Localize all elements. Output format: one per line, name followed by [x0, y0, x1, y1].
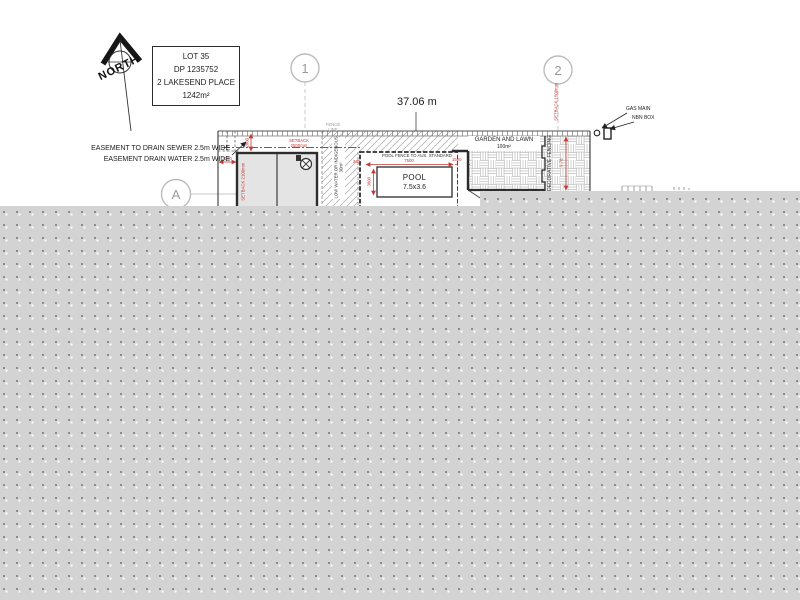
pool-outline	[377, 167, 452, 197]
decorative-fencing-label: DECORATIVE FENCING	[547, 134, 553, 192]
north-arrow-icon	[103, 37, 140, 131]
pool-size: 7.5x3.6	[377, 184, 452, 191]
svg-text:A: A	[172, 187, 181, 202]
garden-label: GARDEN AND LAWN 100m²	[468, 136, 540, 151]
nbn-leader	[610, 122, 634, 129]
dim-side: 9.78	[558, 152, 563, 174]
gas-main-symbol	[594, 130, 600, 136]
easement-note-2: EASEMENT DRAIN WATER 2.5m WIDE	[78, 156, 230, 163]
grid-marker-a: A	[162, 180, 238, 209]
easement-note-1: EASEMENT TO DRAIN SEWER 2.5m WIDE	[78, 145, 230, 152]
fence-note: FENCE LINE	[320, 122, 346, 133]
gas-main-label: GAS MAIN	[626, 106, 650, 112]
setback-top-label: SETBACK 2500mm	[283, 138, 315, 149]
dim-3600: 3600	[366, 171, 371, 193]
svg-text:2: 2	[554, 63, 561, 78]
lot-info-box: LOT 35 DP 1235752 2 LAKESEND PLACE 1242m…	[152, 46, 240, 106]
gas-leader	[602, 113, 627, 128]
dim-2800: 2800	[244, 132, 249, 154]
planting-strip-label: LOW WATER OR INDIGENOUS 30m²	[334, 132, 345, 202]
pool-label: POOL	[377, 173, 452, 182]
svg-text:1: 1	[301, 61, 308, 76]
frontage-dimension: 37.06 m	[397, 96, 437, 108]
dim-200: 200	[353, 159, 360, 164]
street-address: 2 LAKESEND PLACE	[153, 76, 239, 89]
setback-left-label: SETBACK 2100mm	[240, 167, 245, 201]
lot-area: 1242m²	[153, 89, 239, 102]
dim-2100: 2100	[217, 156, 237, 161]
dp-number: DP 1235752	[153, 63, 239, 76]
site-plan-canvas: 1 2 A	[0, 0, 800, 600]
lot-number: LOT 35	[153, 50, 239, 63]
nbn-box-symbol	[604, 128, 611, 139]
steps-marks	[622, 186, 689, 191]
dim-1500: 1500	[452, 157, 462, 162]
setback-right-label: SETBACK 1500mm	[553, 87, 558, 121]
grid-marker-1: 1	[291, 54, 319, 131]
dim-7500: 7500	[394, 158, 424, 163]
nbn-box-label: NBN BOX	[632, 115, 655, 121]
